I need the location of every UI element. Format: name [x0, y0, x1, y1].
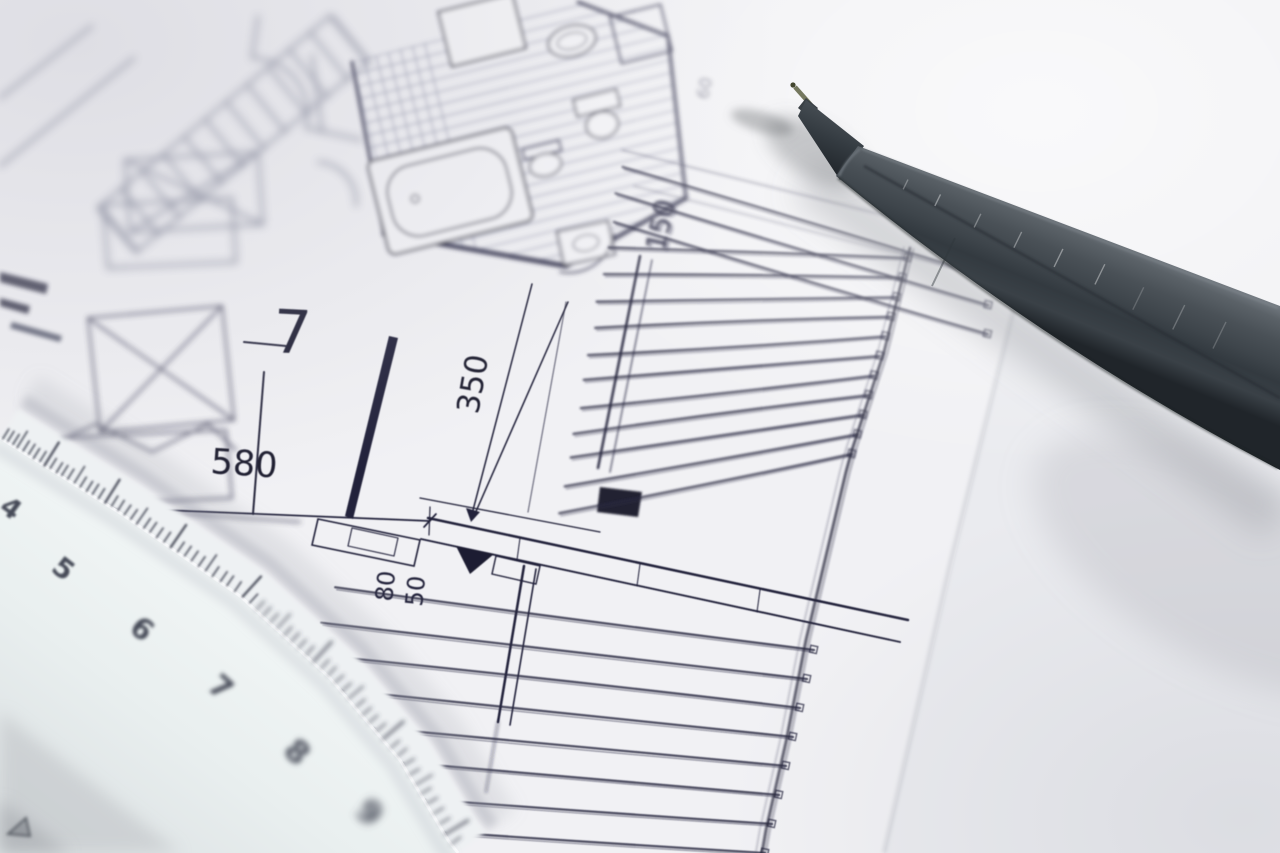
- photo-floor-plan-scene: 7 580 350: [0, 0, 1280, 853]
- floor-plan-photo: 7 580 350: [0, 0, 1280, 853]
